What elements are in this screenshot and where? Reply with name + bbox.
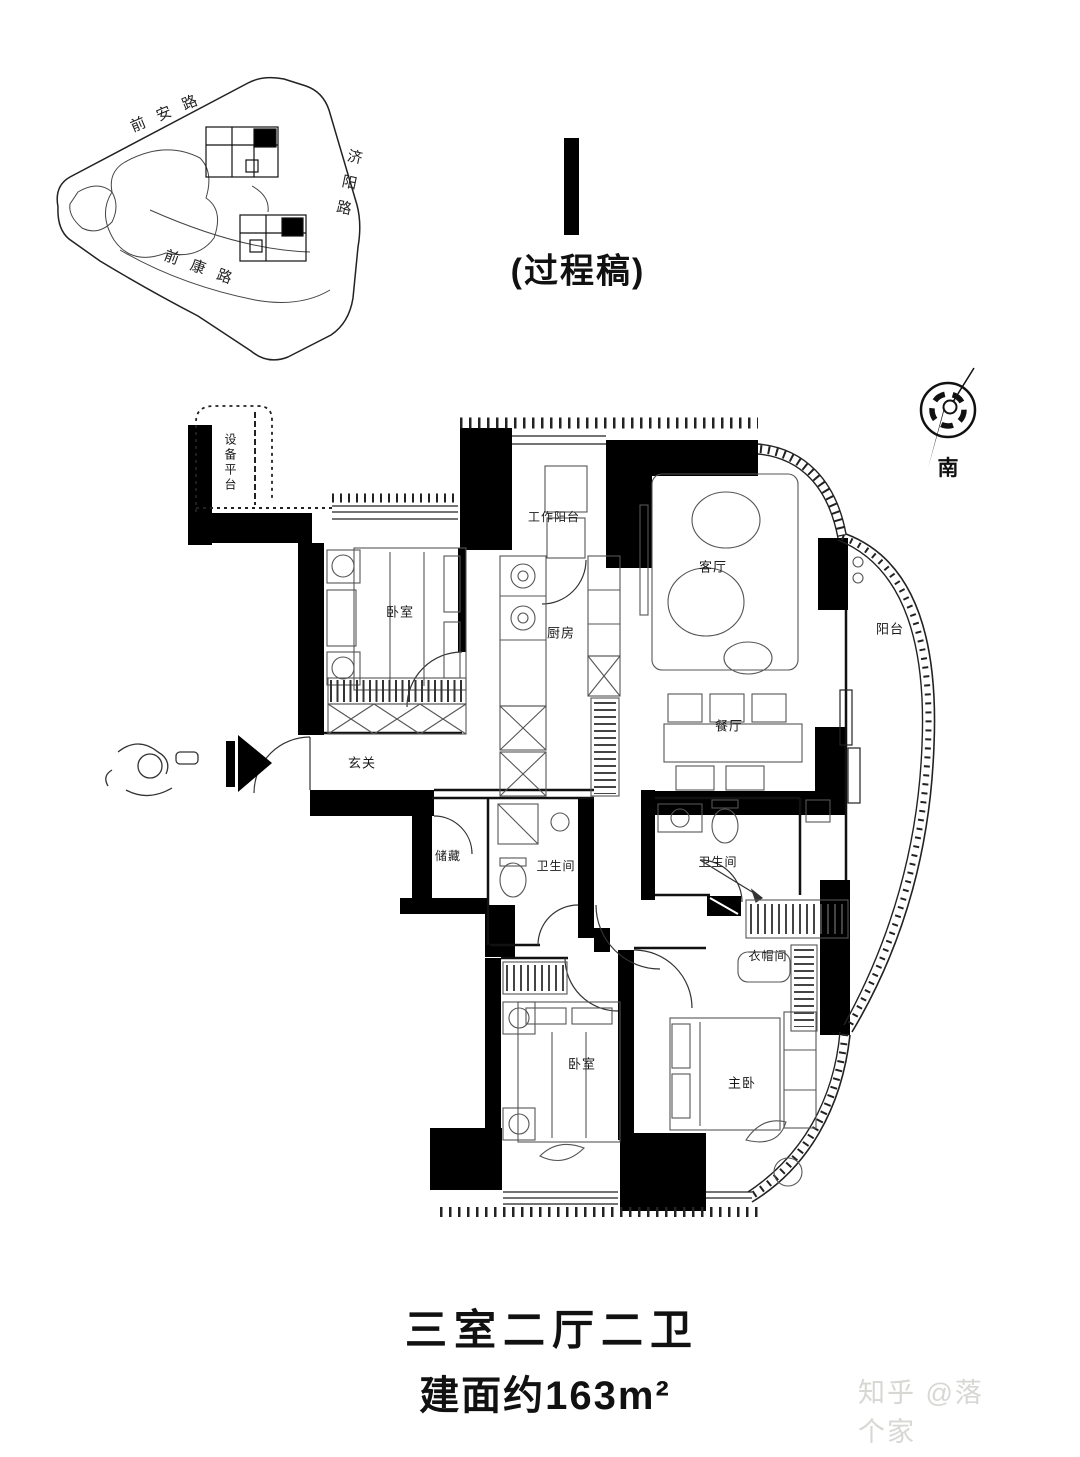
room-label-living-room: 客厅 <box>699 561 727 574</box>
draft-mark-bar <box>564 138 579 235</box>
watermark-text: 知乎 @落个家 <box>858 1371 1006 1449</box>
floorplan-page: 前安路 济阳路 前康路 (过程稿) 南 设备平台 卧室 工作阳台 厨房 客厅 阳… <box>0 0 1080 1457</box>
site-plan <box>57 78 360 360</box>
floorplan-walls <box>188 425 850 1211</box>
room-label-kitchen: 厨房 <box>547 627 575 640</box>
person-icon <box>106 744 198 796</box>
room-label-walk-in-closet: 衣帽间 <box>748 950 787 962</box>
room-label-bathroom-1: 卫生间 <box>536 860 575 872</box>
floorplan-furniture <box>327 466 863 1186</box>
draft-stage-label: (过程稿) <box>511 244 646 293</box>
entry-arrow-icon <box>226 735 272 792</box>
room-label-dining-room: 餐厅 <box>715 720 743 733</box>
room-label-equipment-platform: 设备平台 <box>224 433 236 493</box>
room-label-storage: 储藏 <box>435 850 461 862</box>
room-label-work-balcony: 工作阳台 <box>528 511 580 523</box>
room-label-bedroom-1: 卧室 <box>386 606 414 619</box>
room-label-bathroom-2: 卫生间 <box>698 856 737 868</box>
floorplan-drawing <box>0 0 1080 1457</box>
room-label-balcony: 阳台 <box>876 623 904 636</box>
room-label-entry: 玄关 <box>348 757 376 770</box>
compass-south-label: 南 <box>938 452 959 482</box>
summary-area-text: 建面约163m² <box>419 1363 671 1421</box>
room-label-bedroom-2: 卧室 <box>568 1058 596 1071</box>
room-label-master-bedroom: 主卧 <box>728 1077 756 1090</box>
summary-layout-text: 三室二厅二卫 <box>405 1297 699 1358</box>
